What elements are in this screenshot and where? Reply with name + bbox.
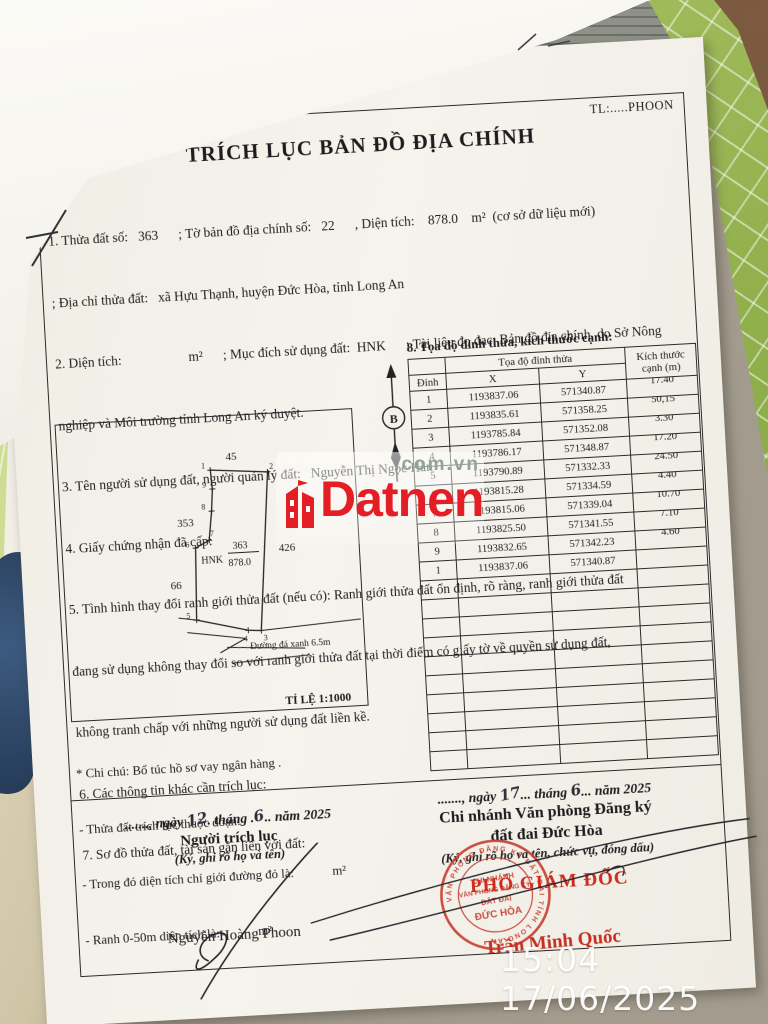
watermark-brand: Datnen [320,470,483,528]
vertex-number: 5 [186,611,190,620]
vertex-number: 1 [201,461,205,470]
coords-table-body: 11193837.06571340.8717.4021193835.615713… [410,375,719,770]
table-cell: 1 [419,560,457,581]
table-cell [423,636,461,657]
table-cell [421,598,459,619]
vertex-number: 9 [202,480,206,489]
vertex-number: 8 [201,502,205,511]
parcel-landuse-code: HNK [201,554,224,566]
date-suffix: .. năm 2025 [264,806,331,825]
pen-mark-left [22,200,92,280]
vertex-number: 6 [185,540,189,549]
body-line: 1. Thửa đất số: 363 ; Tờ bản đồ địa chín… [48,196,684,252]
table-cell [420,579,458,600]
north-label: B [389,412,398,426]
watermark: .com.vn Datnen [276,452,484,544]
date-prefix: ......., ngày [124,814,183,832]
table-cell [425,655,463,676]
vertex-number: 7 [210,529,214,538]
coords-table: Tọa độ đỉnh thửa Kích thước cạnh (m) Đỉn… [407,343,719,771]
handwritten-day: 17 [498,783,522,805]
date-mid: . tháng . [207,810,255,828]
table-cell [426,674,464,695]
table-cell [422,617,460,638]
table-cell: 1 [410,389,448,410]
parcel-area: 878.0 [228,557,251,569]
arrowhead [386,364,397,379]
road-lines [179,608,363,666]
corner-reference: TL:.....PHOON [589,98,674,118]
header-size: Kích thước cạnh (m) [625,343,698,379]
vertex-number: 4 [244,634,248,643]
handwritten-day: 12 [185,808,209,830]
neighbor-parcel-label: 353 [177,517,195,530]
table-cell: 9 [418,541,456,562]
parcel-number: 363 [232,540,248,552]
table-cell [647,736,719,759]
photo-canvas: TL:.....PHOON TRÍCH LỤC BẢN ĐỒ ĐỊA CHÍNH… [0,0,768,1024]
neighbor-parcel-label: 45 [225,451,237,464]
note-line: * Chi chú: Bổ túc hồ sơ vay ngân hàng . [76,745,436,784]
vertex-number: 2 [269,462,273,471]
pen-mark-top [514,28,578,56]
camera-timestamp: 15:04 17/06/2025 [500,940,768,1018]
body-line: ; Địa chỉ thửa đất: xã Hựu Thạnh, huyện … [51,258,687,314]
datnen-logo-icon [280,478,320,530]
date-mid: ... tháng [520,785,568,803]
table-cell: 3 [412,427,450,448]
road-label: Đường đá xanh 6.5m [250,638,331,653]
neighbor-parcel-label: 66 [170,580,182,593]
table-cell: 2 [411,408,449,429]
